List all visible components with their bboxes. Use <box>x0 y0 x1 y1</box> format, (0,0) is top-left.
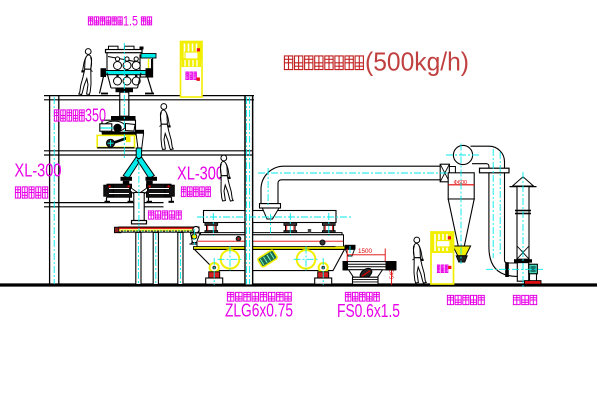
svg-text:1500: 1500 <box>358 248 373 255</box>
svg-text:(500kg/h): (500kg/h) <box>365 47 469 77</box>
svg-text:FS0.6x1.5: FS0.6x1.5 <box>337 300 400 321</box>
svg-text:1.5: 1.5 <box>123 13 138 29</box>
svg-text:ZLG6x0.75: ZLG6x0.75 <box>225 300 293 321</box>
svg-text:Φ600: Φ600 <box>454 180 468 186</box>
svg-text:350: 350 <box>85 106 106 126</box>
svg-text:XL-300: XL-300 <box>15 161 62 181</box>
svg-text:XL-300: XL-300 <box>177 164 224 184</box>
svg-text:545: 545 <box>390 270 396 279</box>
